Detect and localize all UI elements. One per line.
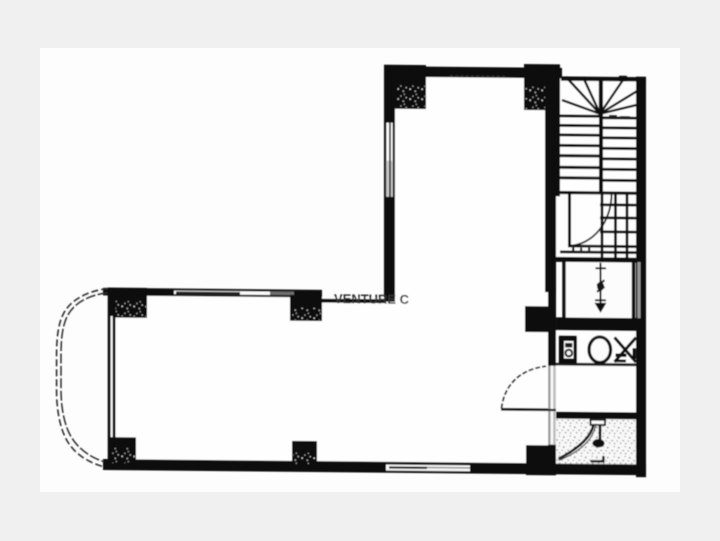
svg-text:VENTURE C: VENTURE C bbox=[334, 292, 409, 307]
